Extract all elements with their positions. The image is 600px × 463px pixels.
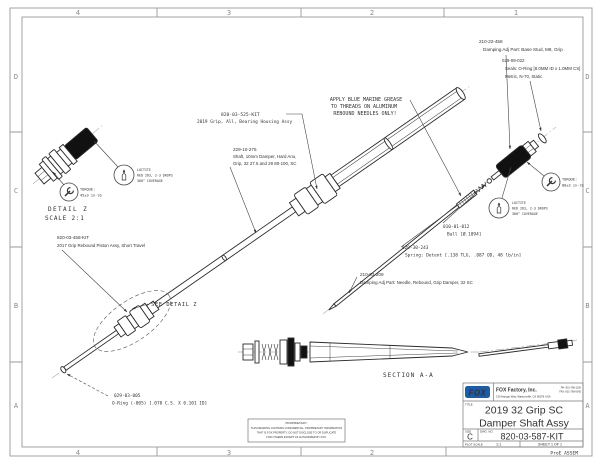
size-value: C (467, 433, 473, 442)
loctite-stud-line1: LOCTITE (512, 201, 526, 205)
torque-detail-line2: 45±3 in-lb (80, 194, 102, 198)
loctite-stud-line2: RED 263, 2-3 DROPS (512, 207, 548, 211)
ball-pn: 010-01-012 (443, 224, 470, 230)
housing-desc: 2019 Grip, All, Bearing Housing Assy (197, 119, 293, 125)
torque-stud-line2: 80±3 in-lb (562, 184, 584, 188)
grease-note-3: REBOUND NEEDLES ONLY! (333, 111, 396, 117)
detail-z-scale: SCALE 2:1 (45, 215, 85, 222)
zone-bottom-2: 2 (370, 449, 374, 457)
piston-pn: 820-03-458-KIT (57, 235, 89, 240)
needle-desc: Damping Adj Part: Needle, Rebound, Grip … (360, 280, 473, 285)
loctite-detail-line3: 360° COVERAGE (137, 179, 163, 183)
plot-scale-label: PLOT SCALE (465, 443, 483, 447)
zone-left-d: D (14, 73, 18, 81)
fox-logo-text: FOX (469, 389, 487, 398)
company-address: 130 Hangar Way, Watsonville, CA 95076 US… (496, 395, 551, 399)
proprietary-line4: FOR OTHERS EXCEPT AS AUTHORIZED BY FOX. (266, 435, 327, 439)
torque-detail-line1: TORQUE: (80, 188, 95, 192)
zone-left-b: B (14, 302, 18, 310)
grease-note-1: APPLY BLUE MARINE GREASE (330, 97, 402, 103)
detail-z-view: DETAIL Z SCALE 2:1 (31, 124, 101, 222)
dwg-number: 820-03-587-KIT (500, 432, 564, 442)
zone-right-b: B (585, 302, 589, 310)
zone-top-4: 4 (76, 9, 80, 17)
company-name: FOX Factory, Inc. (496, 388, 537, 394)
proprietary-line3: THAT IS FOX PROPERTY. DO NOT DISCLOSE TO… (257, 431, 337, 435)
seal-desc1: Seals: O-Ring [8.0MM ID x 1.0MM CS] (505, 66, 580, 71)
plot-note: ProE ASSEM (550, 451, 578, 457)
oring-desc: O-Ring (-005) [.070 C.S. X 0.101 ID] (112, 401, 207, 407)
zone-left-c: C (14, 187, 18, 195)
loctite-stud-line3: 360° COVERAGE (512, 212, 538, 216)
company-fax: FAX: 831-768-9342 (559, 391, 581, 394)
zone-right-a: A (585, 402, 590, 410)
see-detail-z: SEE DETAIL Z (151, 302, 197, 308)
zone-top-2: 2 (370, 9, 374, 17)
zone-right-d: D (585, 73, 589, 81)
torque-balloon-stud: TORQUE: 80±3 in-lb (527, 162, 584, 191)
main-assembly-drawing (54, 81, 470, 381)
shaft-pn: 229-10-275 (233, 147, 257, 152)
zone-right-c: C (585, 187, 589, 195)
zone-top-3: 3 (227, 9, 231, 17)
title-block: FOX FOX Factory, Inc. 130 Hangar Way, Wa… (463, 383, 583, 447)
base-stud-pn: 210-22-458 (479, 39, 503, 44)
ball-desc: Ball [Ø.1094] (447, 231, 481, 238)
sheet-value: SHEET 1 OF 1 (538, 443, 562, 447)
spring-pn: 029-30-243 (402, 245, 429, 251)
spring-desc: Spring: Detent [.138 TLG, .087 OD, 48 lb… (405, 253, 521, 259)
detail-z-label: DETAIL Z (48, 206, 88, 213)
section-aa-view: SECTION A-A (243, 338, 573, 379)
torque-stud-line1: TORQUE: (562, 178, 577, 182)
drawing-sheet: 4 3 2 1 4 3 2 ProE ASSEM D C B A D C B A (0, 0, 600, 463)
oring-pn: 029-03-005 (114, 393, 141, 399)
plot-scale-value: 1:1 (496, 443, 501, 447)
proprietary-note: PROPRIETARY: THIS DRAWING CONTAINS CONFI… (248, 419, 345, 442)
needle-pn: 210-03-209 (360, 272, 384, 277)
seal-pn: 029-08-022 (502, 58, 525, 63)
company-phone: PH: 831-768-1100 (561, 387, 582, 390)
zone-top-1: 1 (514, 9, 518, 17)
proprietary-line1: PROPRIETARY: (286, 421, 308, 425)
shaft-desc2: Grip, 32 27.5 and 29 80-100, SC (233, 161, 296, 166)
loctite-detail-line2: RED 263, 2-3 DROPS (137, 174, 173, 178)
proprietary-line2: THIS DRAWING CONTAINS CONFIDENTIAL, PROP… (251, 426, 342, 430)
housing-pn: 820-03-525-KIT (221, 112, 260, 118)
drawing-title-line1: 2019 32 Grip SC (485, 405, 564, 417)
loctite-balloon-detail: LOCTITE RED 263, 2-3 DROPS 360° COVERAGE (94, 141, 173, 185)
base-stud-desc: Damping Adj Part: Base Stud, M8, Grip (483, 47, 563, 52)
zone-bottom-4: 4 (76, 449, 80, 457)
zone-left-a: A (14, 402, 19, 410)
grease-note-2: TO THREADS ON ALUMINUM (331, 104, 397, 110)
drawing-title-line2: Damper Shaft Assy (479, 418, 570, 430)
section-aa-label: SECTION A-A (383, 372, 434, 379)
title-label: TITLE (465, 403, 473, 407)
loctite-detail-line1: LOCTITE (137, 168, 151, 172)
piston-desc: 2017 Grip Rebound Piston Assy, Short Tra… (57, 243, 145, 248)
zone-bottom-3: 3 (227, 449, 231, 457)
dwg-label: DWG. NO. (480, 430, 494, 434)
seal-desc2: Metric, N-70, Static (505, 74, 543, 79)
shaft-desc1: Shaft, 10mm Damper, Hard Ano, (233, 154, 296, 159)
